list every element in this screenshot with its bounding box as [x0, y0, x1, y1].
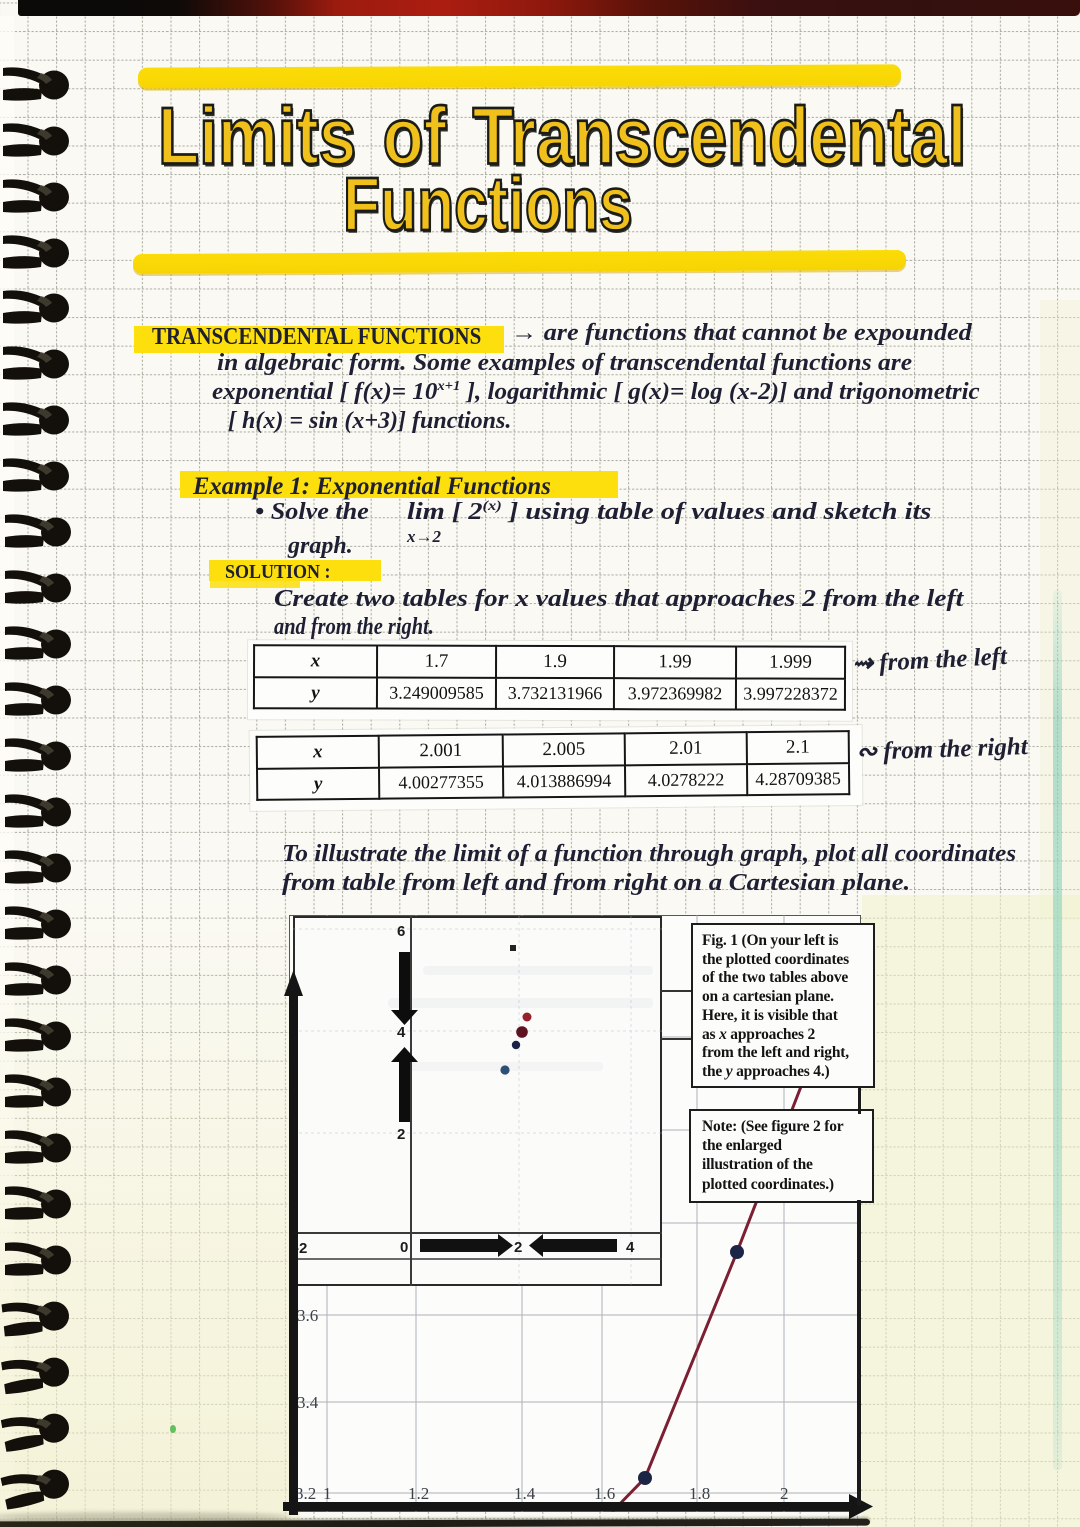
svg-text:4: 4	[626, 1239, 635, 1256]
svg-text:0: 0	[400, 1239, 408, 1256]
svg-text:2: 2	[397, 1126, 405, 1143]
svg-text:6: 6	[397, 923, 405, 940]
svg-text:4: 4	[397, 1024, 406, 1041]
svg-text:2: 2	[514, 1239, 522, 1256]
